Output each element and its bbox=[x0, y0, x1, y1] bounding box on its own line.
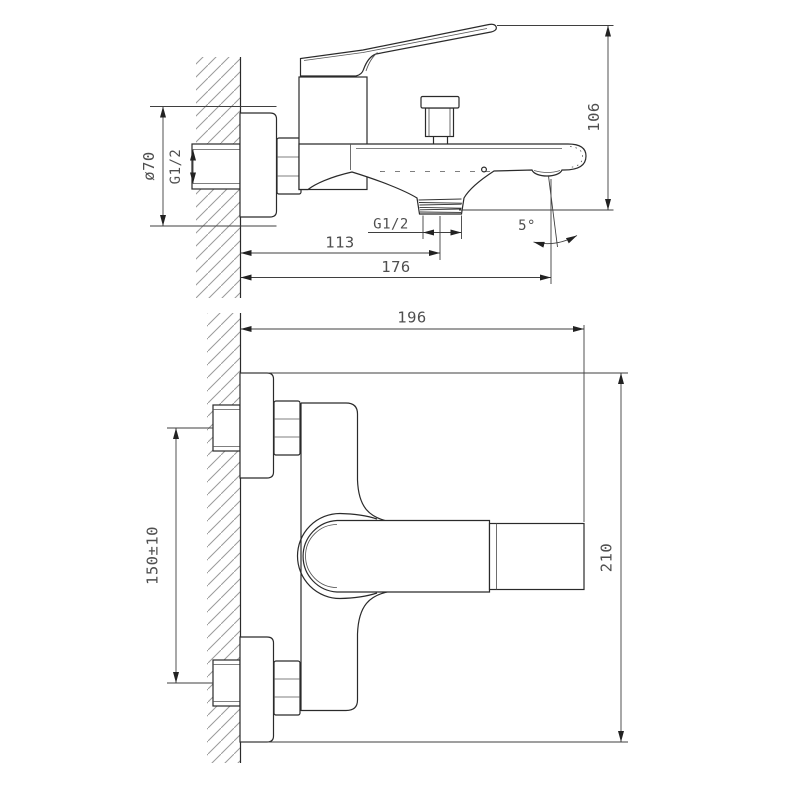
dim-label-shower-thread: G1/2 bbox=[373, 217, 409, 233]
dim-label-spout-reach: 176 bbox=[381, 258, 411, 276]
lower-inlet-pipe bbox=[213, 660, 240, 706]
dim-label-inlet-spacing: 150±10 bbox=[144, 526, 162, 585]
dim-label-wall-to-front: 196 bbox=[397, 309, 427, 327]
drawing-page: ø70 G1/2 106 113 176 G1/2 bbox=[0, 0, 800, 800]
lower-wall-flange bbox=[240, 637, 274, 742]
diverter-knob bbox=[421, 97, 459, 145]
angle-arc bbox=[534, 236, 578, 244]
inlet-pipe bbox=[192, 144, 240, 189]
body-fillet-bottom bbox=[358, 592, 390, 635]
connection-nut bbox=[277, 138, 301, 194]
upper-wall-flange bbox=[240, 373, 274, 478]
upper-connection-nut bbox=[274, 401, 300, 455]
dim-label-shower-outlet-offset: 113 bbox=[325, 234, 355, 252]
dim-label-overall-height: 106 bbox=[585, 102, 603, 132]
spout-plan bbox=[490, 524, 585, 590]
underside-screw-detail bbox=[482, 167, 487, 172]
technical-drawing: ø70 G1/2 106 113 176 G1/2 bbox=[0, 0, 800, 800]
dim-label-inlet-thread: G1/2 bbox=[168, 149, 184, 185]
lever-handle bbox=[301, 24, 497, 76]
wall-flange bbox=[240, 113, 277, 217]
upper-inlet-pipe bbox=[213, 405, 240, 451]
dim-label-flange-diameter: ø70 bbox=[140, 151, 158, 181]
lower-connection-nut bbox=[274, 661, 300, 715]
dim-label-overall-width: 210 bbox=[598, 543, 616, 573]
plan-view: 196 210 150±10 bbox=[144, 309, 629, 764]
side-view: ø70 G1/2 106 113 176 G1/2 bbox=[140, 24, 614, 298]
spray-axis-line bbox=[549, 176, 558, 247]
handle-plan bbox=[303, 521, 489, 593]
dim-label-spout-angle: 5° bbox=[518, 218, 536, 234]
